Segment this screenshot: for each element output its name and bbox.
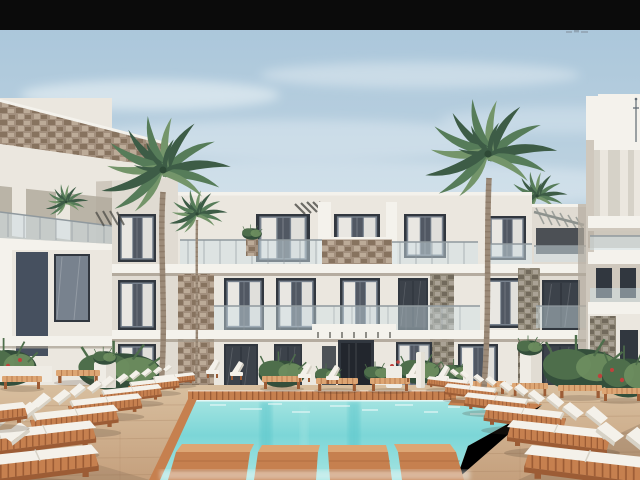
balcony-slab: [588, 216, 640, 230]
letterbox-bar: [0, 0, 640, 30]
balcony-slab: [588, 252, 640, 264]
window: [118, 214, 156, 262]
stone-balcony-parapet: [322, 238, 392, 264]
center-building: [106, 158, 588, 392]
glass-railing: [590, 288, 640, 302]
balcony-slab: [588, 302, 640, 314]
window: [54, 254, 90, 322]
window: [118, 280, 156, 330]
column: [600, 150, 608, 216]
white-planter: [517, 336, 544, 387]
glass-railing: [590, 236, 640, 250]
palm-trunk: [161, 192, 163, 388]
cloud: [260, 62, 580, 88]
towel-stand: [416, 352, 425, 388]
water-glare: [160, 470, 470, 480]
white-planter: [386, 366, 402, 388]
rendering-canvas: [0, 0, 640, 480]
right-building: [586, 94, 640, 392]
floor-slab: [106, 264, 588, 273]
entrance-canopy: [312, 324, 396, 332]
column: [620, 150, 628, 216]
resort-rendering: [0, 0, 640, 480]
